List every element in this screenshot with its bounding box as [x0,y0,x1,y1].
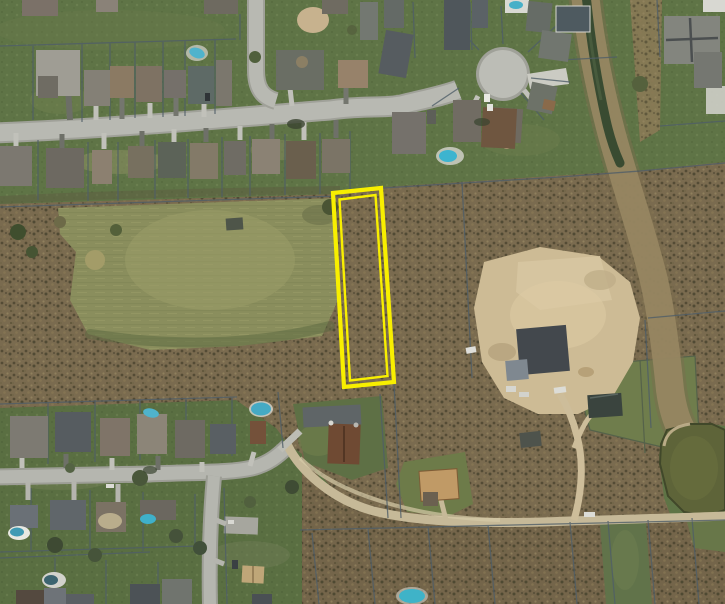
trees-8 [347,25,357,35]
car [484,94,490,102]
house [16,590,46,604]
cul-de-sac [479,50,527,98]
aerial-imagery [0,0,725,604]
trees-4 [54,216,66,228]
trailer [584,512,595,517]
house [276,50,324,90]
trees-20 [143,466,157,474]
buildings-65 [329,421,334,426]
house [472,0,488,28]
roads-18 [706,86,725,114]
buildings-68 [423,492,438,506]
house [10,416,48,458]
house [84,70,110,106]
house [55,412,91,452]
house [50,500,86,530]
trees-16 [88,548,102,562]
house [92,150,112,184]
trees-1 [26,246,38,258]
house [444,0,470,50]
house [158,142,186,178]
house [164,70,186,98]
details-25 [228,520,234,524]
house [175,420,205,458]
house [188,66,214,104]
buildings-6 [38,76,58,98]
swimming-pool [10,528,24,537]
barn [587,393,623,418]
trailer [506,386,516,392]
ponds-1 [670,436,718,500]
openings-2 [125,210,295,310]
trees-2 [85,250,105,270]
ponds [660,424,725,516]
house [252,594,272,604]
buildings-42 [694,52,722,88]
house [252,139,280,174]
swimming-pool [439,150,457,162]
field-shed [226,217,244,230]
house [100,418,130,456]
house [538,30,572,62]
construction-site-4 [584,270,616,290]
trees-0 [10,224,26,240]
house [322,139,350,173]
buildings-44 [703,0,725,12]
driveways-6 [427,110,436,124]
trailer [519,392,529,397]
house [137,414,167,454]
house [360,2,378,40]
swimming-pool [251,403,271,416]
house [322,0,348,14]
house [96,0,118,12]
house [481,107,517,149]
swimming-pool [399,589,425,603]
trees-13 [285,480,299,494]
house [216,60,232,106]
house [110,66,134,98]
shed [519,431,541,448]
house [204,0,238,14]
house [384,0,404,28]
house [286,141,316,179]
house [162,579,192,604]
trees-9 [632,76,648,92]
car [232,560,238,569]
trees-19 [474,118,490,126]
south-branch-street [210,476,214,604]
house [44,588,66,604]
house [210,424,236,454]
house [66,594,94,604]
house [224,141,246,175]
trees-3 [110,224,122,236]
house [10,505,38,528]
openings-12 [611,530,639,590]
trees-6 [249,51,261,63]
patio [98,513,122,529]
house [525,1,552,33]
trees-11 [169,529,183,543]
trees-14 [65,463,75,473]
house [130,584,160,604]
house [128,146,154,178]
house-dark-trim [556,6,590,32]
buildings-70 [505,359,529,381]
swimming-pool [140,514,156,524]
swimming-pool [44,575,58,585]
street-tree-shadow [287,119,305,129]
construction-site-3 [488,343,516,361]
house [0,146,32,186]
house [136,66,162,102]
house [250,421,266,444]
car [205,93,210,101]
trees-17 [193,541,207,555]
aerial-map-view[interactable] [0,0,725,604]
roads-19 [106,484,114,488]
house [22,0,58,16]
construction-site-5 [578,367,594,377]
trees-15 [47,537,63,553]
trees-12 [244,496,256,508]
house [338,60,368,88]
house [190,143,218,179]
trees-7 [296,56,308,68]
house [392,112,426,154]
car [487,104,493,111]
roads-17 [224,516,259,534]
swimming-pool [509,1,523,9]
buildings-66 [354,423,359,428]
house [46,148,84,188]
